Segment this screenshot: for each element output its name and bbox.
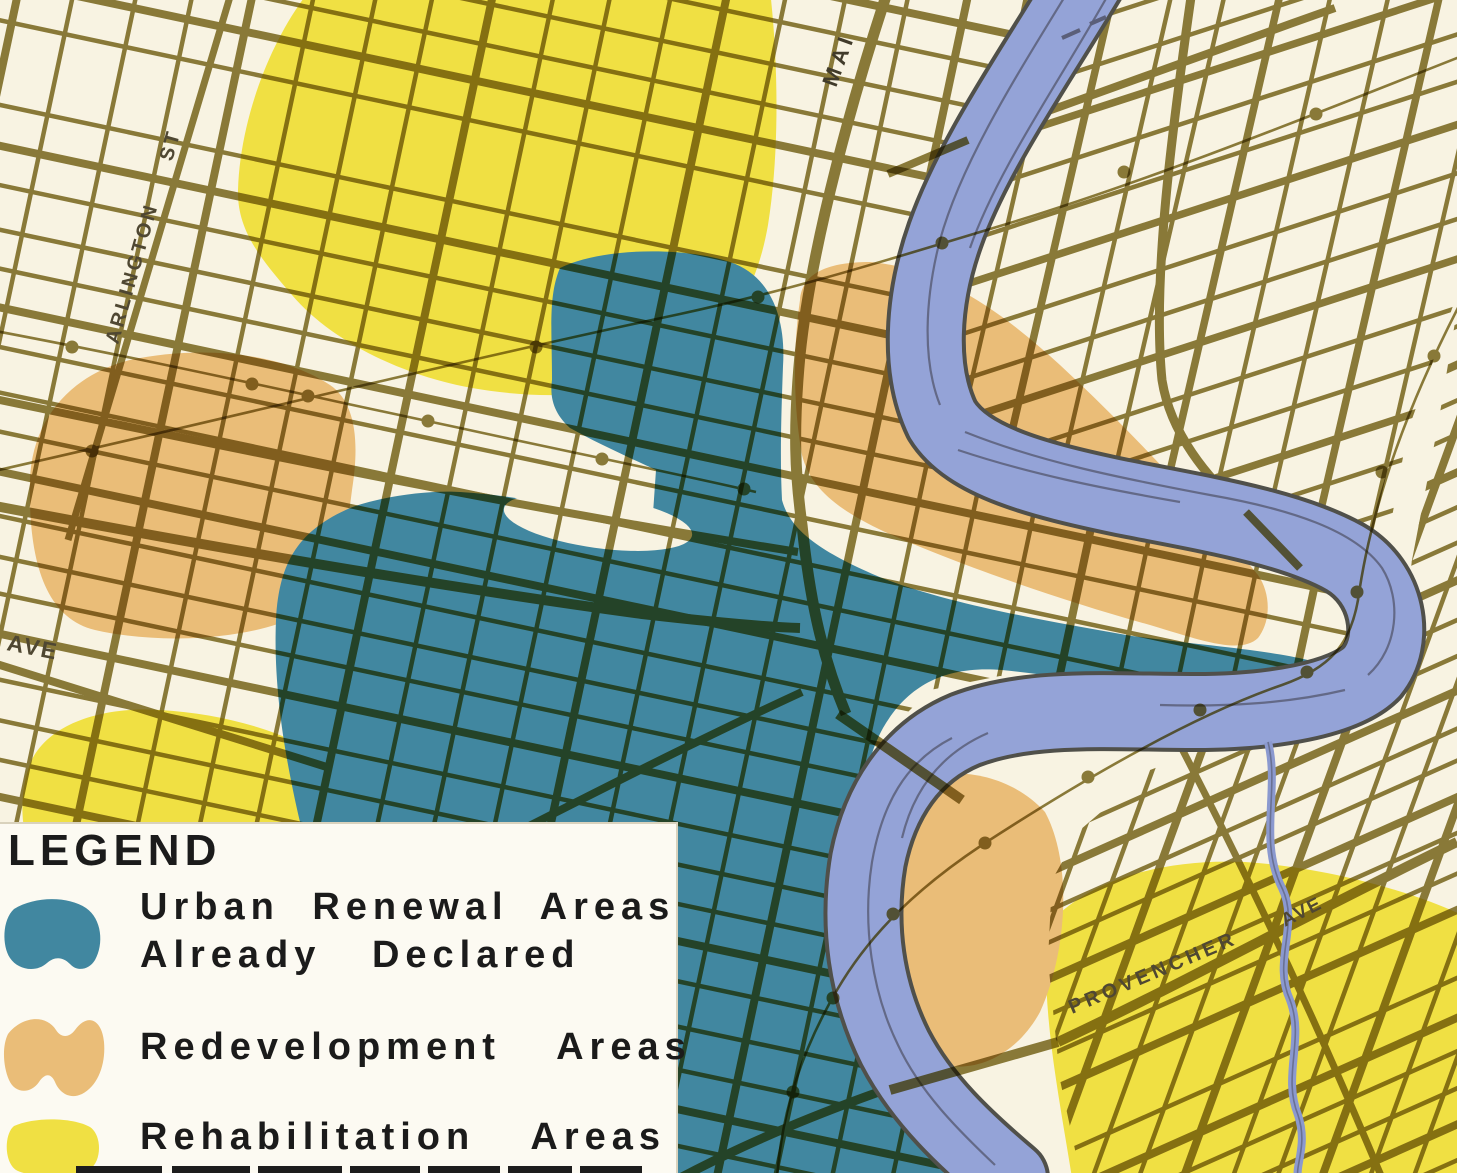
railway-station-dot: [1082, 771, 1095, 784]
railway-station-dot: [66, 341, 79, 354]
legend-label-urban-renewal-line1: Urban Renewal Areas: [140, 886, 675, 929]
legend-label-rehabilitation: Rehabilitation Areas: [140, 1116, 666, 1159]
railway-station-dot: [1301, 666, 1314, 679]
railway-station-dot: [787, 1086, 800, 1099]
railway-station-dot: [246, 378, 259, 391]
legend-label-urban-renewal-line2: Already Declared: [140, 934, 581, 977]
legend-panel: LEGEND Urban Renewal Areas Already Decla…: [0, 822, 678, 1173]
map-stage: ARLINGTON ST MAI AVE PROVENCHER AVE LEGE…: [0, 0, 1457, 1173]
legend-swatches: [0, 824, 110, 1173]
railway-station-dot: [1118, 166, 1131, 179]
railway-station-dot: [979, 837, 992, 850]
legend-swatch-rehabilitation: [7, 1119, 99, 1173]
legend-swatch-urban-renewal: [4, 899, 100, 969]
railway-station-dot: [738, 483, 751, 496]
railway-station-dot: [1310, 108, 1323, 121]
railway-station-dot: [827, 992, 840, 1005]
railway-station-dot: [86, 445, 99, 458]
legend-label-redevelopment: Redevelopment Areas: [140, 1026, 692, 1069]
railway-station-dot: [530, 341, 543, 354]
railway-station-dot: [1376, 466, 1389, 479]
railway-station-dot: [422, 415, 435, 428]
railway-station-dot: [936, 237, 949, 250]
legend-swatch-redevelopment: [4, 1019, 104, 1096]
railway-station-dot: [752, 291, 765, 304]
cropped-text-row: [0, 1166, 676, 1173]
railway-station-dot: [1351, 586, 1364, 599]
railway-station-dot: [1428, 350, 1441, 363]
railway-station-dot: [1194, 704, 1207, 717]
railway-station-dot: [887, 908, 900, 921]
railway-station-dot: [596, 453, 609, 466]
